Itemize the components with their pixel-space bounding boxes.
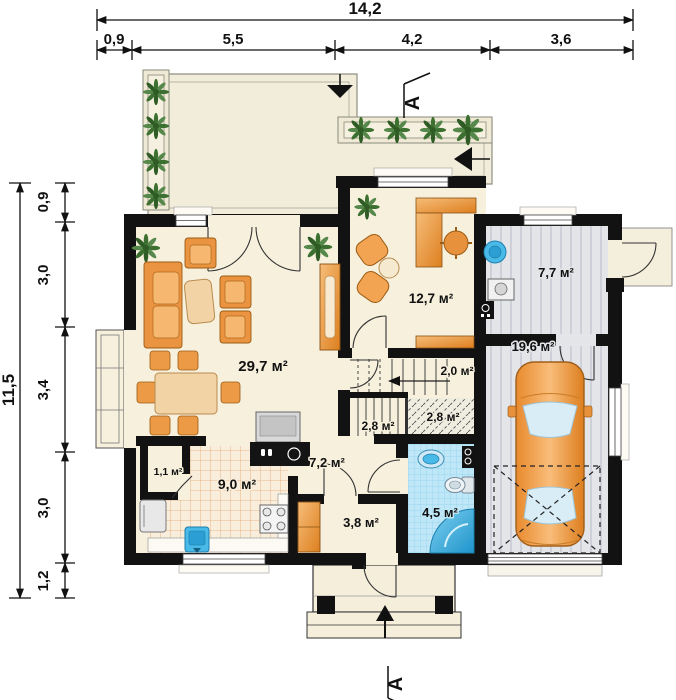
- dim-left-seg-4: 3,0: [35, 498, 52, 519]
- dimension-left: 11,5 0,9 3,0 3,4 3,0 1,2: [0, 183, 75, 598]
- side-table: [379, 258, 399, 278]
- floor-plan-drawing: 14,2 0,9 5,5 4,2 3,6 11,5 0,9 3,0 3,4 3: [0, 0, 676, 700]
- fridge: [140, 500, 166, 532]
- plant-icon: [143, 113, 169, 139]
- dim-total-height: 11,5: [0, 374, 18, 406]
- plant-icon: [143, 183, 169, 209]
- dim-left-seg-5: 1,2: [35, 571, 52, 592]
- porch-column: [317, 596, 335, 614]
- window-study-north: [374, 168, 452, 187]
- boiler: [488, 279, 514, 300]
- kitchen-island: [256, 412, 300, 442]
- room-label-pantry: 1,1 м²: [154, 466, 183, 478]
- car-windshield: [523, 402, 577, 438]
- kitchen-counter: [148, 538, 288, 552]
- planter-top: [338, 115, 492, 145]
- room-label-study: 12,7 м²: [409, 291, 454, 306]
- armchair: [185, 238, 216, 268]
- sofa: [144, 262, 182, 348]
- dining-chair: [150, 416, 170, 435]
- dim-total-width: 14,2: [348, 0, 381, 18]
- electric-meter: [477, 301, 494, 319]
- plant-icon: [143, 149, 169, 175]
- room-label-garage: 19,6 м²: [512, 339, 556, 354]
- coffee-table: [184, 279, 215, 325]
- east-landing: [620, 228, 672, 286]
- room-label-vestibule: 3,8 м²: [343, 515, 379, 530]
- section-letter: A: [402, 96, 424, 110]
- bookshelf: [416, 336, 474, 348]
- room-label-utility: 7,7 м²: [538, 265, 574, 280]
- car: [508, 362, 592, 546]
- dim-left-seg-3: 3,4: [35, 379, 52, 401]
- section-mark-bottom: A: [385, 666, 412, 700]
- plant-icon: [304, 233, 332, 261]
- plant-icon: [453, 115, 483, 145]
- desk: [416, 198, 476, 213]
- room-label-stairs-left: 2,8 м²: [362, 419, 395, 433]
- plant-icon: [143, 79, 169, 105]
- utility-sink: [484, 241, 506, 263]
- floor-plan-page: 14,2 0,9 5,5 4,2 3,6 11,5 0,9 3,0 3,4 3: [0, 0, 676, 700]
- armchair: [220, 276, 251, 308]
- plant-icon: [420, 117, 446, 143]
- plant-icon: [132, 234, 160, 262]
- room-label-stairs-upper: 2,0 м²: [441, 364, 474, 378]
- car-mirror: [508, 406, 516, 417]
- kitchen-black-counter: [250, 442, 310, 466]
- planter-left: [143, 70, 169, 210]
- washbasin: [418, 450, 444, 468]
- garage-apron: [488, 565, 602, 576]
- kitchen-sink: [185, 527, 209, 553]
- dining-chair: [178, 416, 198, 435]
- dining-chair: [150, 351, 170, 370]
- dining-chair: [178, 351, 198, 370]
- dim-left-seg-1: 0,9: [35, 192, 52, 213]
- room-label-hall: 7,2 м²: [309, 455, 345, 470]
- car-mirror: [584, 406, 592, 417]
- tv-cabinet: [320, 264, 340, 350]
- section-letter: A: [385, 677, 407, 691]
- room-label-bathroom: 4,5 м²: [422, 505, 458, 520]
- dimension-top: 14,2 0,9 5,5 4,2 3,6: [97, 0, 633, 60]
- plant-icon: [354, 194, 379, 219]
- window-living-north: [174, 207, 212, 226]
- dim-top-seg-3: 4,2: [402, 31, 423, 48]
- porch-column: [435, 596, 453, 614]
- room-label-kitchen: 9,0 м²: [218, 476, 257, 492]
- window-garage-east: [609, 384, 629, 460]
- plant-icon: [348, 117, 374, 143]
- dim-top-seg-4: 3,6: [551, 31, 572, 48]
- stove: [260, 505, 288, 533]
- garage-door: [488, 554, 602, 564]
- washer: [462, 446, 474, 468]
- window-kitchen-south: [179, 554, 269, 573]
- dining-table: [155, 373, 217, 414]
- toilet: [445, 477, 474, 493]
- bay-window: [96, 330, 124, 448]
- car-rear-window: [524, 487, 576, 524]
- window-utility-north: [520, 207, 576, 225]
- room-label-stairs-right: 2,8 м²: [427, 410, 460, 424]
- dining-chair: [221, 382, 240, 403]
- armchair: [220, 311, 251, 343]
- dim-top-seg-2: 5,5: [223, 31, 244, 48]
- room-label-living: 29,7 м²: [238, 358, 287, 375]
- desk: [416, 213, 442, 267]
- porch: [307, 565, 461, 638]
- dining-chair: [137, 382, 156, 403]
- dim-top-seg-1: 0,9: [104, 31, 125, 48]
- dim-left-seg-2: 3,0: [35, 265, 52, 286]
- plant-icon: [384, 117, 410, 143]
- wardrobe: [298, 502, 320, 552]
- section-mark-top: A: [402, 73, 430, 118]
